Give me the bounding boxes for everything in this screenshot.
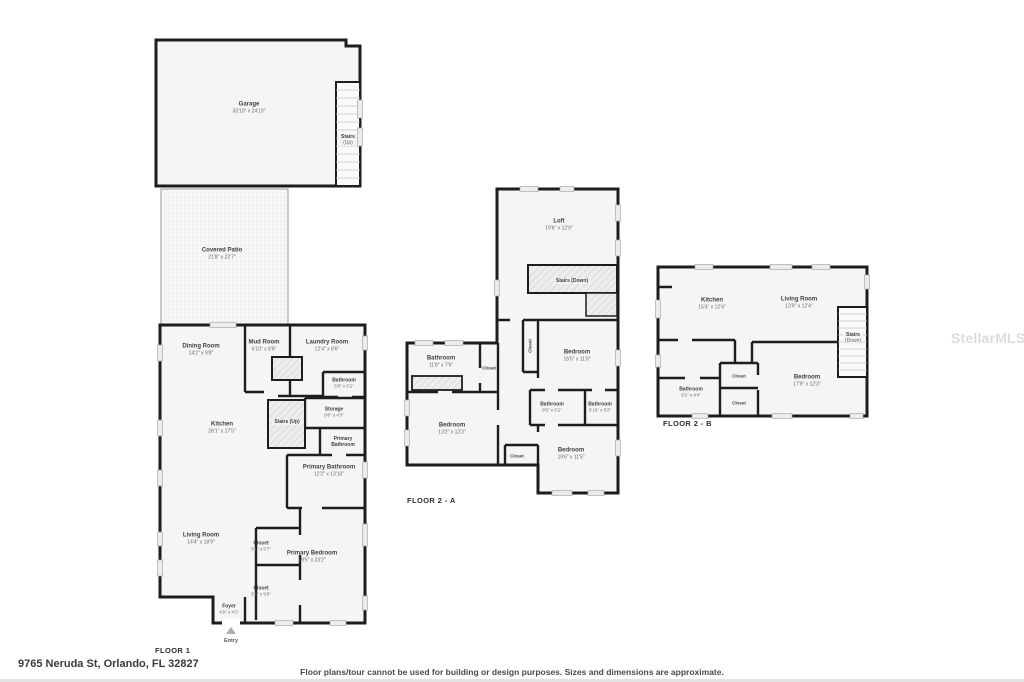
room-label-garage-stairs: Stairs (Up) [339,134,357,146]
room-name: Living Room [781,296,817,303]
room-dims: (Down) [845,338,861,344]
floorplan-walls-svg [0,0,1024,682]
room-label-bathroom-2b: Bathroom 9'2" x 4'4" [679,386,703,397]
room-label-storage: Storage 9'8" x 4'3" [324,406,344,417]
room-dims: 26'1" x 17'5" [208,429,235,435]
disclaimer-text: Floor plans/tour cannot be used for buil… [0,667,1024,677]
room-dims: 4'9" x 4'1" [219,609,239,614]
room-name: Covered Patio [202,247,242,254]
room-dims: 15'5" x 11'8" [563,357,590,363]
room-dims: 21'8" x 22'7" [202,255,242,261]
room-name: Closet [510,453,524,458]
room-label-bathroom-f1: Bathroom 5'8" x 5'2" [332,377,356,388]
room-dims: 19'5" x 23'2" [287,558,337,564]
room-label-closet-bath-2a: Closet [482,365,496,370]
room-label-stairs-up: Stairs (Up) [272,419,301,425]
room-name: Garage [233,101,266,108]
room-label-bathroom-1-2a: Bathroom 11'8" x 7'6" [427,355,455,368]
room-dims: 9'2" x 4'4" [679,392,703,397]
room-dims: 17'9" x 12'3" [793,382,820,388]
room-label-dining-room: Dining Room 14'2" x 9'8" [182,343,219,356]
room-dims: 12'2" x 13'10" [303,472,355,478]
room-label-kitchen-2b: Kitchen 15'4" x 12'4" [698,297,725,310]
room-name: Bedroom [793,374,820,381]
room-name: Dining Room [182,343,219,350]
room-dims: 19'6" x 12'9" [545,226,572,232]
mudroom-bench [272,357,302,380]
room-label-primary-bathroom-wc: Primary Bathroom [324,436,362,448]
room-dims: 9'8" x 4'3" [324,412,344,417]
room-dims: 12'4" x 8'6" [306,347,348,353]
room-dims: 5'8" x 5'2" [332,383,356,388]
room-label-covered-patio: Covered Patio 21'8" x 22'7" [202,247,242,260]
room-label-stairs-down-2b: Stairs (Down) [843,332,863,344]
room-dims: 13'2" x 12'3" [438,430,465,436]
room-dims: (Up) [341,140,355,146]
stellar-mls-watermark: StellarMLS [951,330,1024,346]
room-name: Bedroom [438,422,465,429]
room-name: Closet [527,339,532,353]
room-dims: 19'6" x 11'5" [557,455,584,461]
room-dims: 5'1" x 9'6" [251,591,271,596]
room-label-foyer: Foyer 4'9" x 4'1" [219,603,239,614]
room-label-bathroom-2-2a: Bathroom 9'5" x 5'2" [540,401,564,412]
floorplan-canvas: Garage 33'10" x 24'10" Stairs (Up) Cover… [0,0,1024,682]
room-label-closet-2: Closet 5'1" x 9'6" [251,585,271,596]
room-dims: 14'4" x 18'9" [183,540,219,546]
floor2b-title: FLOOR 2 - B [663,419,712,428]
room-name: Kitchen [698,297,725,304]
floor1-title: FLOOR 1 [155,646,190,655]
room-label-bedroom-2b: Bedroom 17'9" x 12'3" [793,374,820,387]
room-dims: 13'9" x 12'4" [781,304,817,310]
room-name: Closet [732,373,746,378]
room-name: Bathroom [427,355,455,362]
room-label-laundry-room: Laundry Room 12'4" x 8'6" [306,339,348,352]
room-label-closet-1: Closet 5'1" x 5'7" [251,540,271,551]
room-label-stairs-down-2a: Stairs (Down) [554,278,590,284]
room-name: Loft [545,218,572,225]
entry-arrow-icon [226,627,236,634]
room-name: Bedroom [563,349,590,356]
room-label-primary-bedroom: Primary Bedroom 19'5" x 23'2" [287,550,337,563]
room-label-closet-1-2b: Closet [732,373,746,378]
room-name: Laundry Room [306,339,348,346]
room-label-living-room-2b: Living Room 13'9" x 12'4" [781,296,817,309]
room-name: Stairs (Up) [274,419,299,425]
room-dims: 14'2" x 9'8" [182,351,219,357]
room-dims: 6'10" x 8'6" [249,347,280,353]
room-label-bedroom-1-2a: Bedroom 15'5" x 11'8" [563,349,590,362]
room-dims: 9'5" x 5'2" [540,407,564,412]
room-name: Kitchen [208,421,235,428]
room-label-bedroom-3-2a: Bedroom 19'6" x 11'5" [557,447,584,460]
room-label-kitchen: Kitchen 26'1" x 17'5" [208,421,235,434]
room-label-living-room: Living Room 14'4" x 18'9" [183,532,219,545]
room-label-mud-room: Mud Room 6'10" x 8'6" [249,339,280,352]
room-name: Primary Bedroom [287,550,337,557]
room-name: Bedroom [557,447,584,454]
entry-label: Entry [224,638,238,644]
room-dims: 11'8" x 7'6" [427,363,455,369]
room-name: Living Room [183,532,219,539]
floor2a-title: FLOOR 2 - A [407,496,456,505]
room-label-loft: Loft 19'6" x 12'9" [545,218,572,231]
floor2a-walls [405,187,621,496]
room-name: Closet [732,400,746,405]
room-label-closet-hall-2a: Closet [527,339,532,353]
room-dims: 15'4" x 12'4" [698,305,725,311]
room-label-bathroom-3-2a: Bathroom 5'10" x 5'2" [588,401,612,412]
room-dims: 33'10" x 24'10" [233,109,266,115]
room-label-bedroom-2-2a: Bedroom 13'2" x 12'3" [438,422,465,435]
bathtub [412,376,462,390]
room-dims: 5'1" x 5'7" [251,546,271,551]
room-label-closet-bottom-2a: Closet [510,453,524,458]
room-label-closet-2-2b: Closet [732,400,746,405]
room-name: Closet [482,365,496,370]
room-name: Mud Room [249,339,280,346]
room-label-garage: Garage 33'10" x 24'10" [233,101,266,114]
room-dims: 5'10" x 5'2" [588,407,612,412]
room-label-primary-bathroom: Primary Bathroom 12'2" x 13'10" [303,464,355,477]
room-name: Primary Bathroom [303,464,355,471]
room-name: Stairs (Down) [556,278,588,284]
room-name: Primary Bathroom [324,436,362,448]
